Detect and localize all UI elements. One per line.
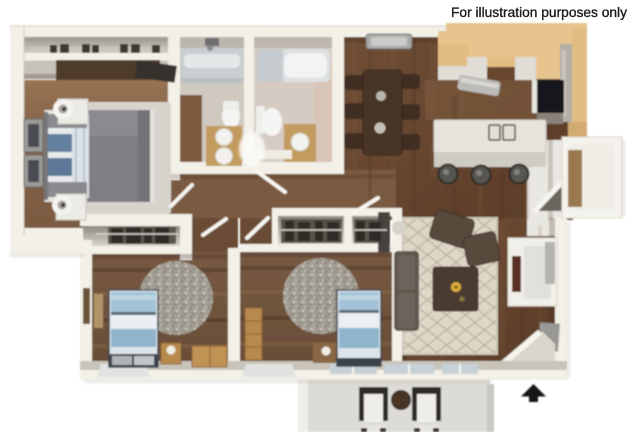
svg-text:For illustration purposes only: For illustration purposes only bbox=[451, 4, 627, 20]
